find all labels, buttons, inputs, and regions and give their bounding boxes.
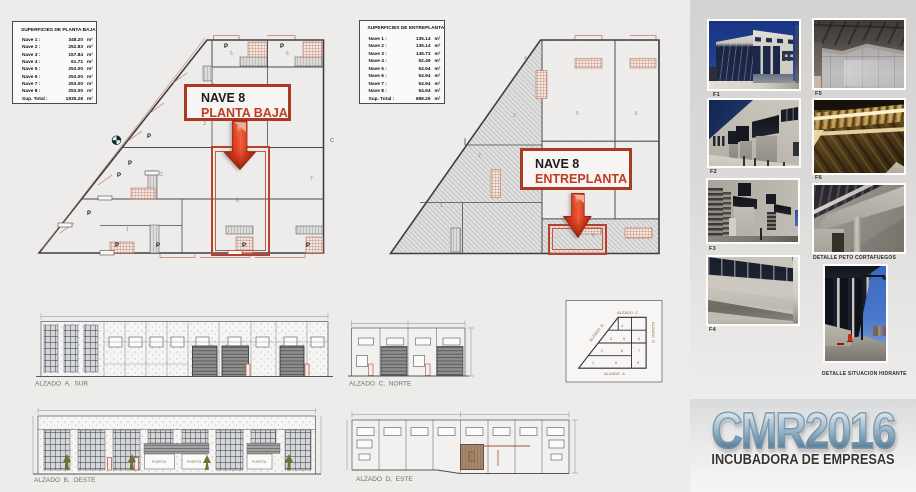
svg-text:P: P [280, 44, 284, 50]
svg-text:ALZADO B, OESTE: ALZADO B, OESTE [34, 477, 96, 484]
svg-text:P: P [147, 134, 151, 140]
svg-text:PUERTA: PUERTA [152, 460, 167, 464]
svg-text:ALZADO C, NORTE: ALZADO C, NORTE [349, 381, 412, 388]
svg-text:1: 1 [440, 203, 443, 209]
svg-text:6: 6 [621, 349, 623, 353]
svg-text:PUERTA: PUERTA [187, 460, 202, 464]
svg-text:P: P [117, 173, 121, 179]
svg-text:1: 1 [592, 361, 594, 365]
svg-text:P: P [224, 44, 228, 50]
svg-text:P: P [115, 243, 119, 249]
svg-text:P: P [128, 161, 132, 167]
svg-text:4: 4 [621, 324, 623, 328]
svg-text:PUERTA: PUERTA [252, 460, 267, 464]
svg-text:2: 2 [160, 172, 163, 178]
svg-text:6: 6 [286, 51, 289, 57]
svg-text:ALZADO C: ALZADO C [617, 310, 638, 315]
svg-text:ALZADO A, SUR: ALZADO A, SUR [35, 381, 88, 388]
svg-text:2: 2 [478, 153, 481, 159]
svg-text:9: 9 [637, 361, 639, 365]
svg-text:8: 8 [615, 361, 617, 365]
svg-text:ALZADO D: ALZADO D [651, 322, 656, 343]
svg-text:C: C [330, 138, 334, 144]
svg-text:3: 3 [513, 113, 516, 119]
svg-text:3: 3 [610, 337, 612, 341]
svg-text:5: 5 [623, 337, 625, 341]
svg-text:5: 5 [576, 111, 579, 117]
svg-text:6: 6 [638, 337, 640, 341]
svg-text:5: 5 [230, 51, 233, 57]
svg-text:2: 2 [601, 349, 603, 353]
svg-text:1: 1 [126, 227, 129, 233]
svg-text:P: P [87, 211, 91, 217]
svg-text:7: 7 [638, 349, 640, 353]
svg-text:P: P [156, 243, 160, 249]
svg-text:ALZADO D, ESTE: ALZADO D, ESTE [356, 476, 413, 483]
svg-text:4: 4 [524, 56, 527, 62]
svg-text:P: P [306, 243, 310, 249]
svg-text:6: 6 [635, 111, 638, 117]
svg-text:ALZADO A: ALZADO A [604, 371, 625, 376]
svg-text:7: 7 [310, 176, 313, 182]
